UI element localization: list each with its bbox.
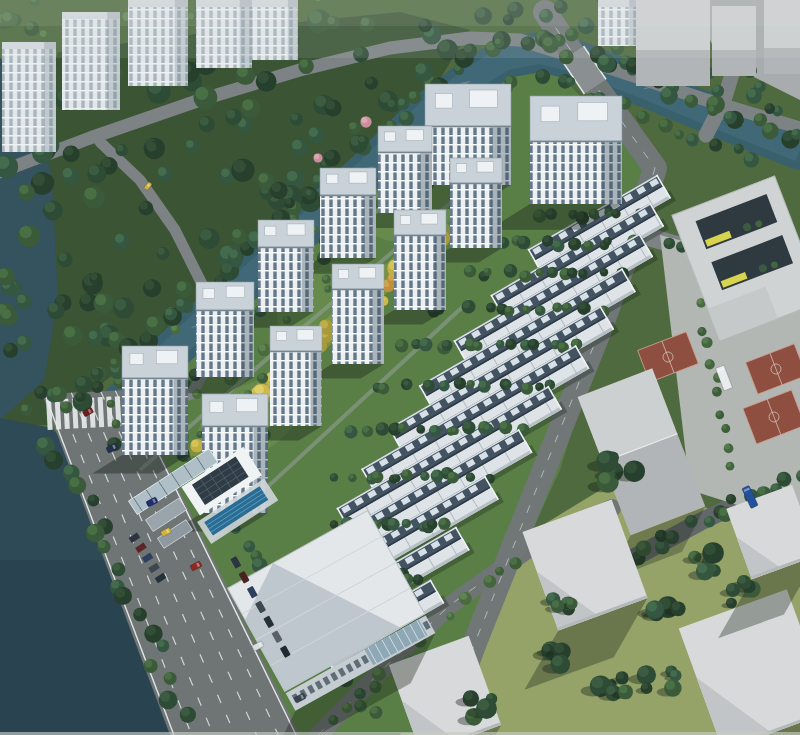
context-tower bbox=[2, 42, 56, 152]
aerial-site-render bbox=[0, 0, 800, 735]
aerial-render-image bbox=[0, 0, 800, 735]
